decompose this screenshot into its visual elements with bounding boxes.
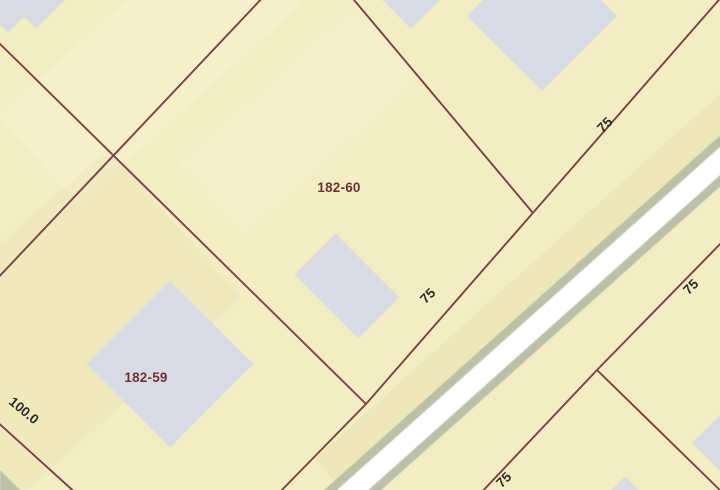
parcel-map-viewport: 182-60 182-59 75 75 75 75 100.0	[0, 0, 720, 490]
parcel-label: 182-59	[124, 370, 167, 385]
parcel-map-canvas[interactable]: 182-60 182-59 75 75 75 75 100.0	[0, 0, 720, 490]
parcel-label: 182-60	[317, 180, 360, 195]
